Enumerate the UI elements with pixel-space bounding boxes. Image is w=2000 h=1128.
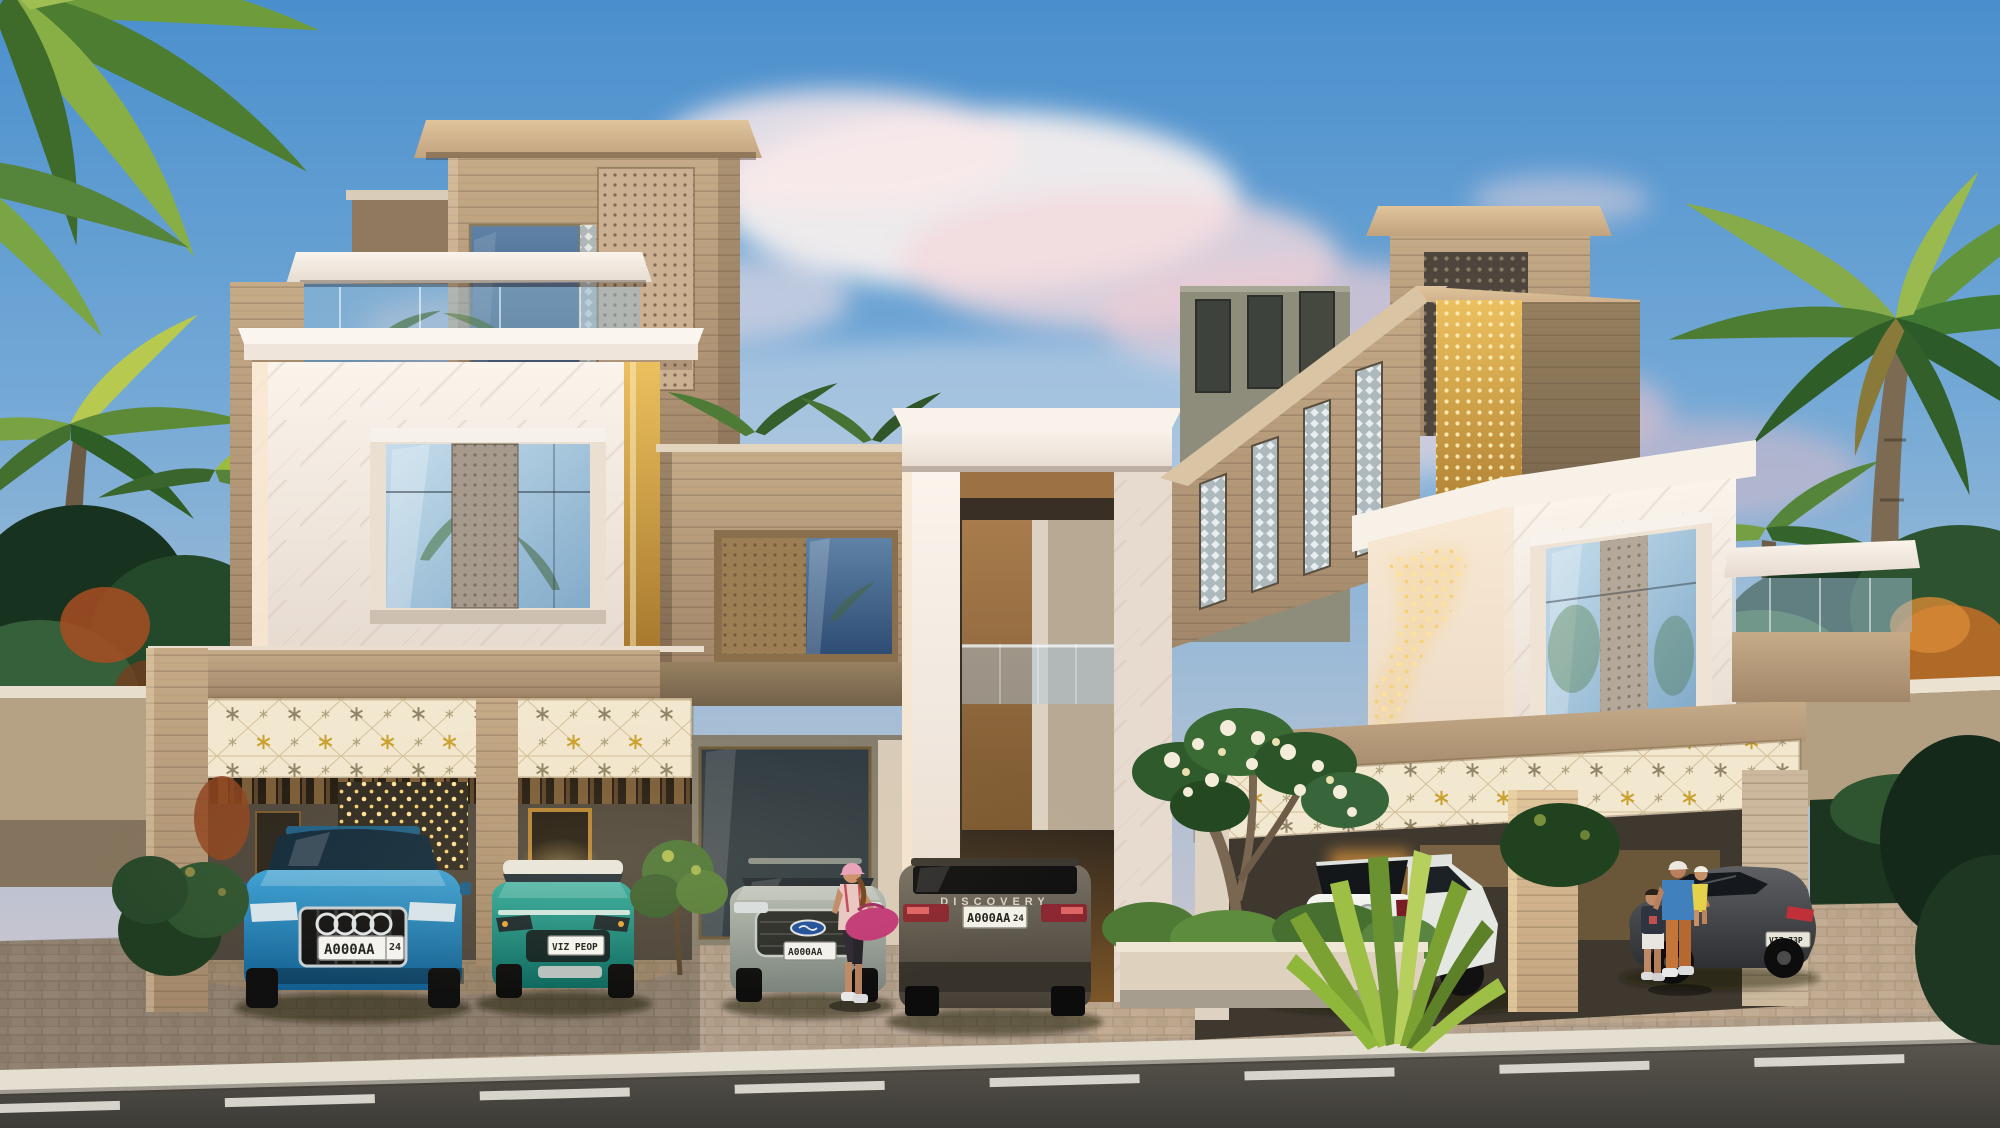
garden-wall-cap-left (0, 686, 162, 698)
gold-pier (624, 362, 660, 662)
slot-window (1252, 437, 1278, 592)
wheel (1051, 986, 1085, 1016)
villa-render-canvas: DISCOVERY A000AA 24 A000AA 24 VIZ 73P (0, 0, 2000, 1128)
child-in-yellow (1692, 884, 1708, 912)
wheel (905, 986, 939, 1016)
warm-light-overlay (100, 720, 1140, 1000)
slot-window (1200, 474, 1226, 609)
wheel (246, 968, 278, 1008)
slot-window (1304, 400, 1330, 575)
white-marble-box-left (238, 328, 704, 662)
right-rooftop-terrace (1724, 540, 1920, 702)
architectural-render: DISCOVERY A000AA 24 A000AA 24 VIZ 73P (0, 0, 2000, 1128)
